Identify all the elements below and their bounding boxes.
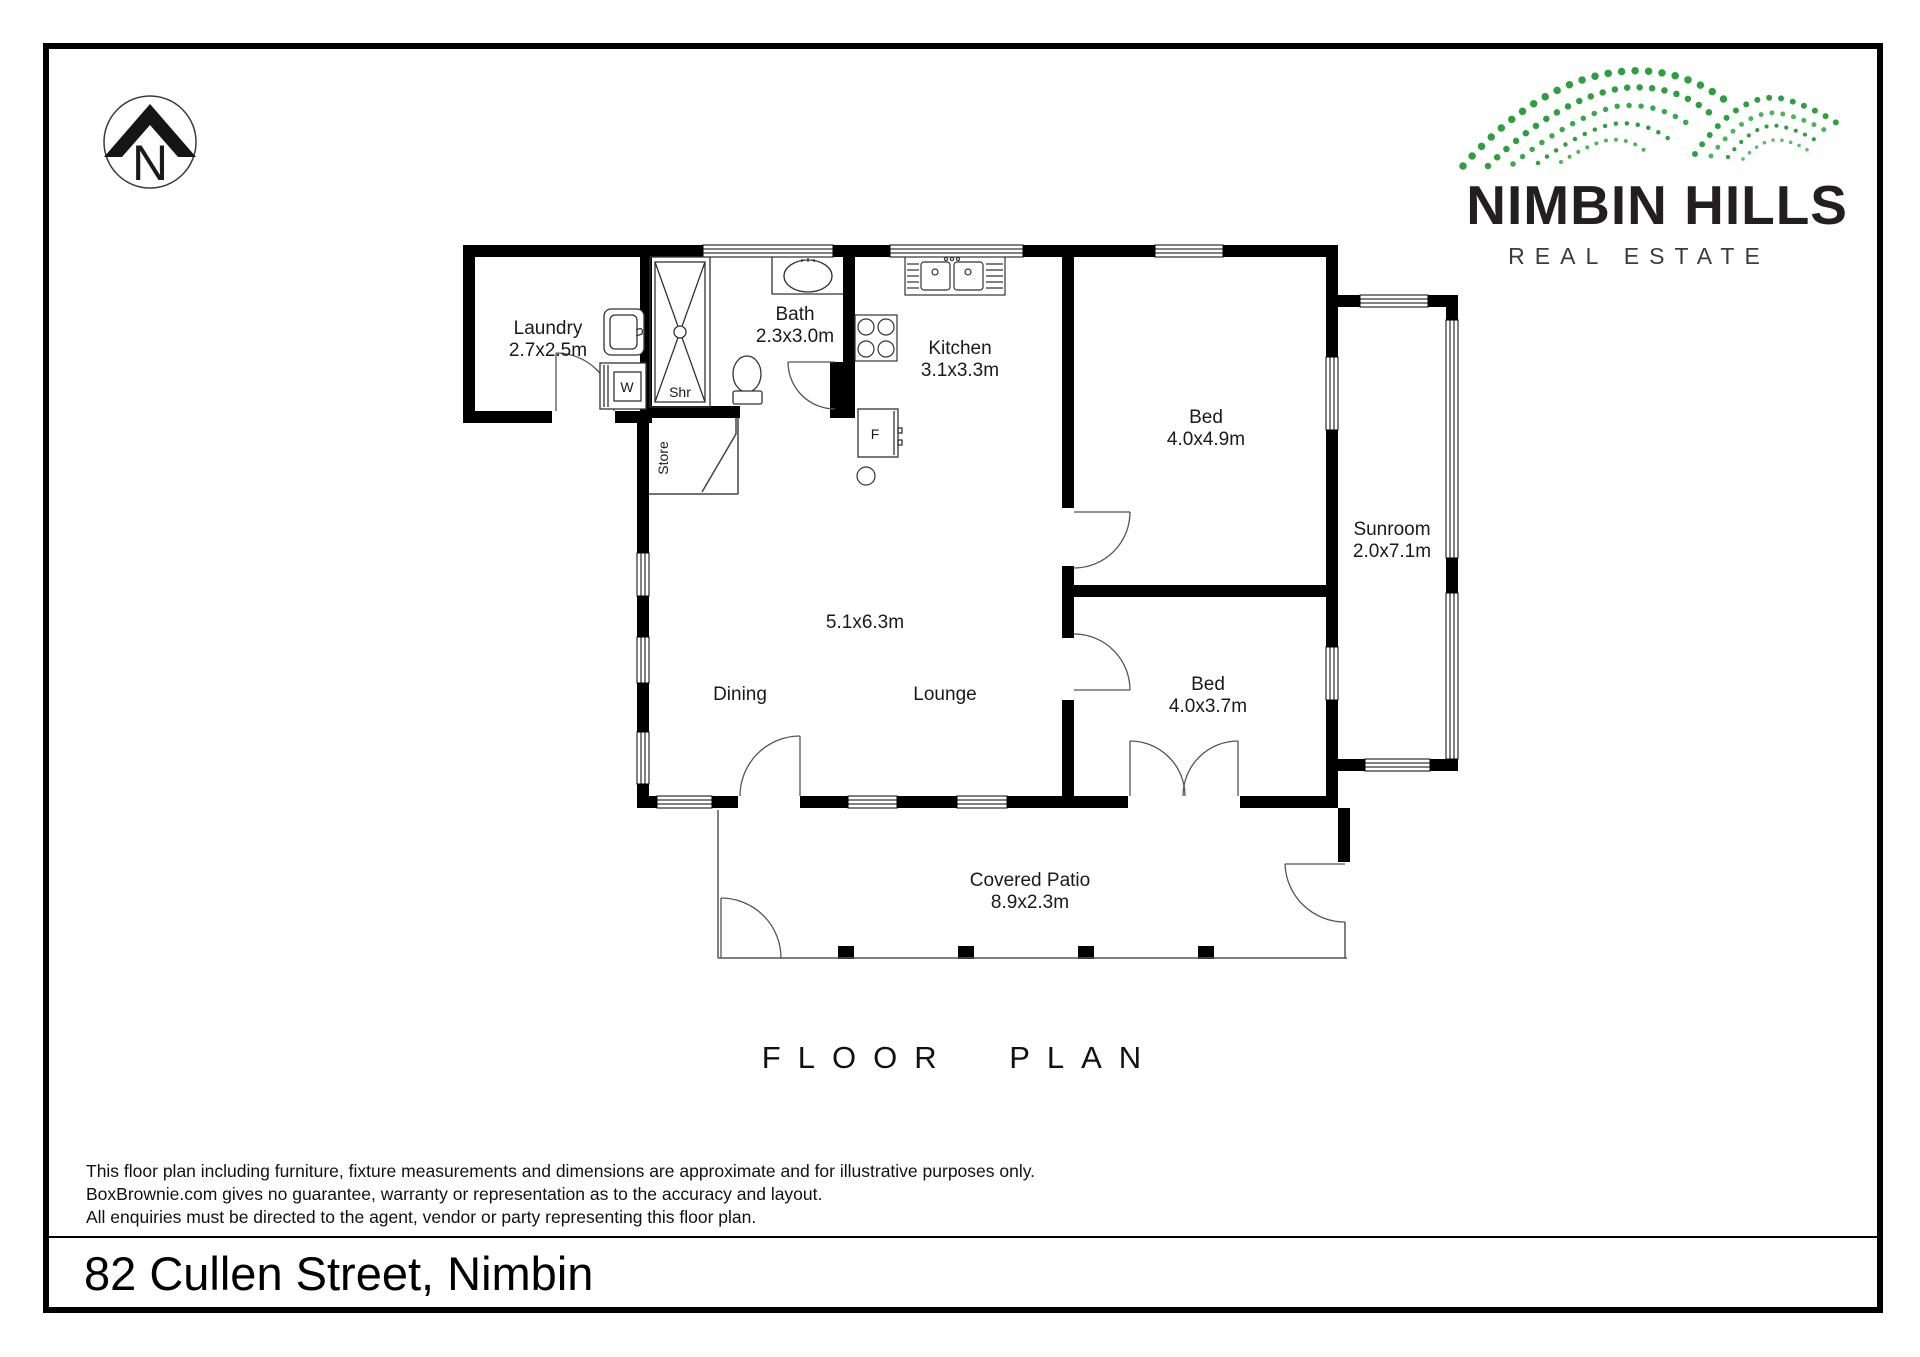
patio-dims: 8.9x2.3m [991,892,1069,913]
address-divider [43,1236,1877,1238]
kitchen-sink-fixture [905,257,1005,295]
kitchen-label: Kitchen [928,338,991,359]
bath-label: Bath [775,304,814,325]
property-address: 82 Cullen Street, Nimbin [84,1246,593,1301]
fridge-label: F [871,426,880,442]
disclaimer: This floor plan including furniture, fix… [86,1160,1035,1229]
sunroom-dims: 2.0x7.1m [1353,541,1431,562]
store-label: Store [655,441,671,475]
laundry-label: Laundry [514,318,583,339]
bath-dims: 2.3x3.0m [756,326,834,347]
dining-label: Dining [713,684,767,705]
floor-plan-title: FLOOR PLAN [0,1040,1920,1076]
hot-water-fixture [857,467,875,485]
lounge-label: Lounge [913,684,976,705]
disclaimer-line-2: BoxBrownie.com gives no guarantee, warra… [86,1183,1035,1206]
bed1-label: Bed [1189,407,1223,428]
fridge-fixture [858,409,902,457]
sunroom-label: Sunroom [1353,519,1430,540]
laundry-dims: 2.7x2.5m [509,340,587,361]
basin-fixture [772,257,843,294]
floor-plan: Laundry 2.7x2.5m Bath 2.3x3.0m Kitchen 3… [0,0,1920,1357]
kitchen-dims: 3.1x3.3m [921,360,999,381]
washer-label: W [620,379,634,395]
bed1-dims: 4.0x4.9m [1167,429,1245,450]
bed2-dims: 4.0x3.7m [1169,696,1247,717]
living-dims: 5.1x6.3m [826,612,904,633]
bed2-label: Bed [1191,674,1225,695]
toilet-fixture [733,356,762,404]
patio-label: Covered Patio [970,870,1090,891]
shower-label: Shr [669,384,691,400]
laundry-tub-fixture [604,309,644,355]
disclaimer-line-1: This floor plan including furniture, fix… [86,1160,1035,1183]
stove-fixture [855,315,897,361]
disclaimer-line-3: All enquiries must be directed to the ag… [86,1206,1035,1229]
